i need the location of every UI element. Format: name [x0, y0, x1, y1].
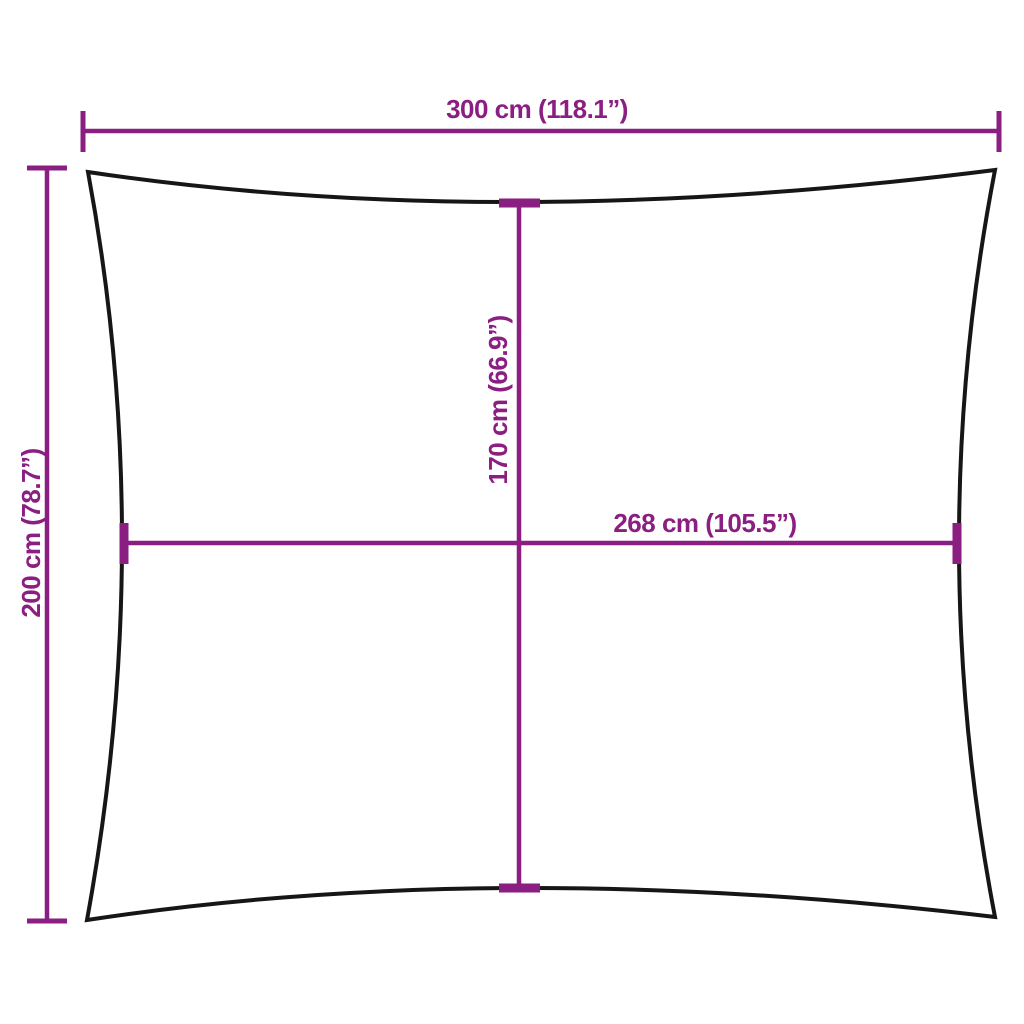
- dimension-diagram-canvas: 300 cm (118.1”) 200 cm (78.7”) 170 cm (6…: [0, 0, 1024, 1024]
- left-height-dimension: 200 cm (78.7”): [16, 168, 67, 921]
- top-width-dimension: 300 cm (118.1”): [83, 94, 999, 152]
- left-height-dimension-label: 200 cm (78.7”): [16, 448, 46, 617]
- center-height-dimension-label: 170 cm (66.9”): [483, 315, 513, 484]
- center-width-dimension-label: 268 cm (105.5”): [613, 508, 796, 538]
- top-width-dimension-label: 300 cm (118.1”): [446, 94, 628, 124]
- dimension-diagram: 300 cm (118.1”) 200 cm (78.7”) 170 cm (6…: [0, 0, 1024, 1024]
